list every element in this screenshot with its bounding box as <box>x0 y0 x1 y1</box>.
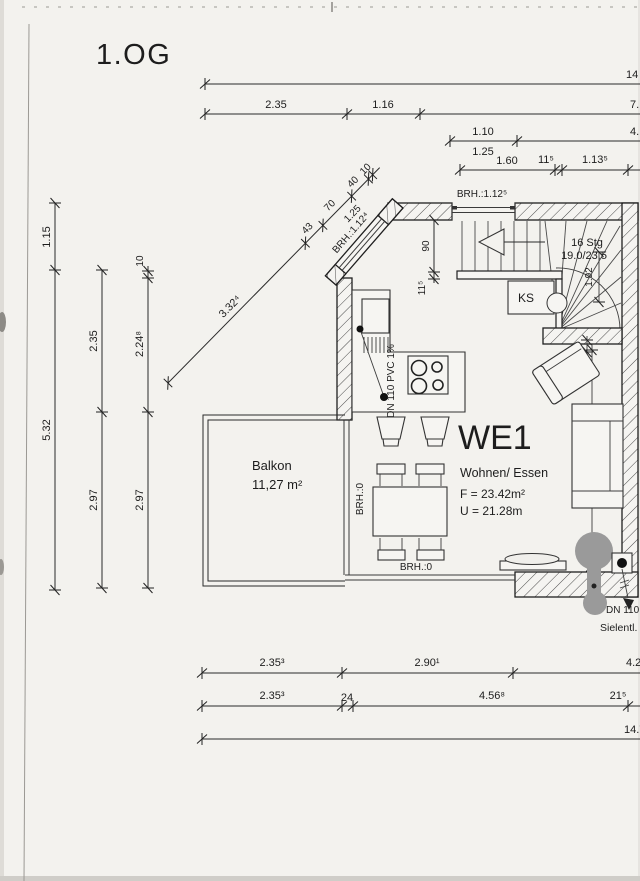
armchair <box>532 341 601 405</box>
dim-label: 2.35³ <box>259 657 284 669</box>
dining-table <box>373 487 447 536</box>
dim-label: 90 <box>421 240 432 252</box>
stool <box>421 417 449 446</box>
dim-label: 43 <box>300 221 316 237</box>
pipe-point <box>592 584 597 589</box>
scanned-floor-plan-page: 1.OG 14 2.35 1.16 7. 1.10 1.25 4. 1.60 1… <box>0 0 640 881</box>
dim-label: 4.2 <box>626 657 640 669</box>
wall-top-right <box>515 203 638 220</box>
room-use: Wohnen/ Essen <box>460 466 548 480</box>
dim-label: 11⁵ <box>538 154 554 166</box>
dim-label: 14.7 <box>624 724 640 736</box>
wall-right <box>622 203 638 597</box>
scan-artifacts <box>0 0 640 881</box>
stair-bottom-wall <box>543 328 622 344</box>
stair-landing-edge <box>457 271 562 279</box>
balcony-label: Balkon <box>252 458 292 473</box>
dim-label: 40 <box>345 174 361 190</box>
dim-label: 5.32 <box>41 419 53 440</box>
kitchen-sink <box>362 299 389 333</box>
chair <box>416 464 444 486</box>
sideboard <box>500 554 566 571</box>
page-title: 1.OG <box>96 39 171 71</box>
dim-chain-bottom: 2.35³ 2.90¹ 4.2 2.35³ 24 4.56⁸ 21⁵ 14.7 <box>197 657 640 745</box>
dim-label: 2.24⁸ <box>134 331 146 357</box>
dim-label: 3.32⁴ <box>217 293 244 320</box>
window-top <box>452 203 515 220</box>
drain-label: DN 110 <box>606 605 640 616</box>
dim-label: 10 <box>358 161 374 177</box>
balcony-area-label: 11,27 m² <box>252 477 303 492</box>
dim-label: 1.92 <box>584 267 595 287</box>
dim-label: 4. <box>630 126 639 138</box>
dim-label: 10 <box>135 255 146 267</box>
dim-label: 1.15 <box>41 226 53 247</box>
stair-direction-arrow <box>479 229 545 255</box>
dim-label: 1.10 <box>472 126 493 138</box>
dim-label: 4.56⁸ <box>479 690 505 702</box>
dim-label: 1.13⁵ <box>582 154 608 166</box>
chair <box>377 464 405 486</box>
dim-label: 1.60 <box>496 155 517 167</box>
dim-label: 1.25 <box>472 146 493 158</box>
sofa <box>572 404 623 508</box>
drain-small-circle <box>583 591 607 615</box>
dim-label: 2.90¹ <box>414 657 439 669</box>
dim-label: 2.35 <box>88 330 100 351</box>
dim-label: 70 <box>322 198 338 214</box>
duct-circle <box>547 293 567 313</box>
stair-count-label: 16 Stg <box>571 237 603 249</box>
dim-chain-left: 1.15 5.32 2.35 2.97 10 2.24⁸ 2.97 <box>41 198 154 595</box>
dim-label: 1.16 <box>372 99 393 111</box>
pipe-label: DN 110 PVC 1% <box>386 344 397 418</box>
dim-label: 24 <box>341 692 353 704</box>
dim-label: 7. <box>630 99 639 111</box>
floor-plan-canvas: 1.OG 14 2.35 1.16 7. 1.10 1.25 4. 1.60 1… <box>0 0 640 881</box>
dim-label: 2.35 <box>265 99 286 111</box>
dim-label: 11⁵ <box>417 281 428 296</box>
shaft-label: KS <box>518 291 534 305</box>
dim-chain-top: 14 2.35 1.16 7. 1.10 1.25 4. 1.60 11⁵ 1.… <box>200 69 640 200</box>
stool <box>377 417 405 446</box>
vent-point <box>617 558 627 568</box>
room-area: F = 23.42m² <box>460 487 525 501</box>
chair <box>378 538 405 560</box>
dim-label: 14 <box>626 69 638 81</box>
window-left <box>344 420 349 575</box>
kitchen: DN 110 PVC 1% <box>352 290 465 418</box>
staircase: KS 16 Stg 19.0/23.5 1.92 <box>457 221 622 344</box>
stove <box>408 356 448 394</box>
pipe-point <box>357 326 364 333</box>
room-perimeter: U = 21.28m <box>460 504 522 518</box>
vent-label: Sielentl. <box>600 622 637 634</box>
sill-height-label: BRH.:0 <box>400 562 433 573</box>
dim-label: 2.97 <box>88 489 100 510</box>
balcony: Balkon 11,27 m² <box>203 415 345 586</box>
dim-label: 2.35³ <box>259 690 284 702</box>
chair <box>417 538 444 560</box>
wall-bottom-right <box>515 572 638 597</box>
sill-height-label: BRH.:1.12⁵ <box>457 189 507 200</box>
room-name: WE1 <box>458 419 532 457</box>
dining-area <box>373 417 449 560</box>
dim-label: 21⁵ <box>610 690 627 702</box>
window-bottom <box>345 575 515 580</box>
dim-label: 2.97 <box>134 489 146 510</box>
wall-left <box>337 278 352 420</box>
sill-height-label: BRH.:0 <box>355 482 366 515</box>
